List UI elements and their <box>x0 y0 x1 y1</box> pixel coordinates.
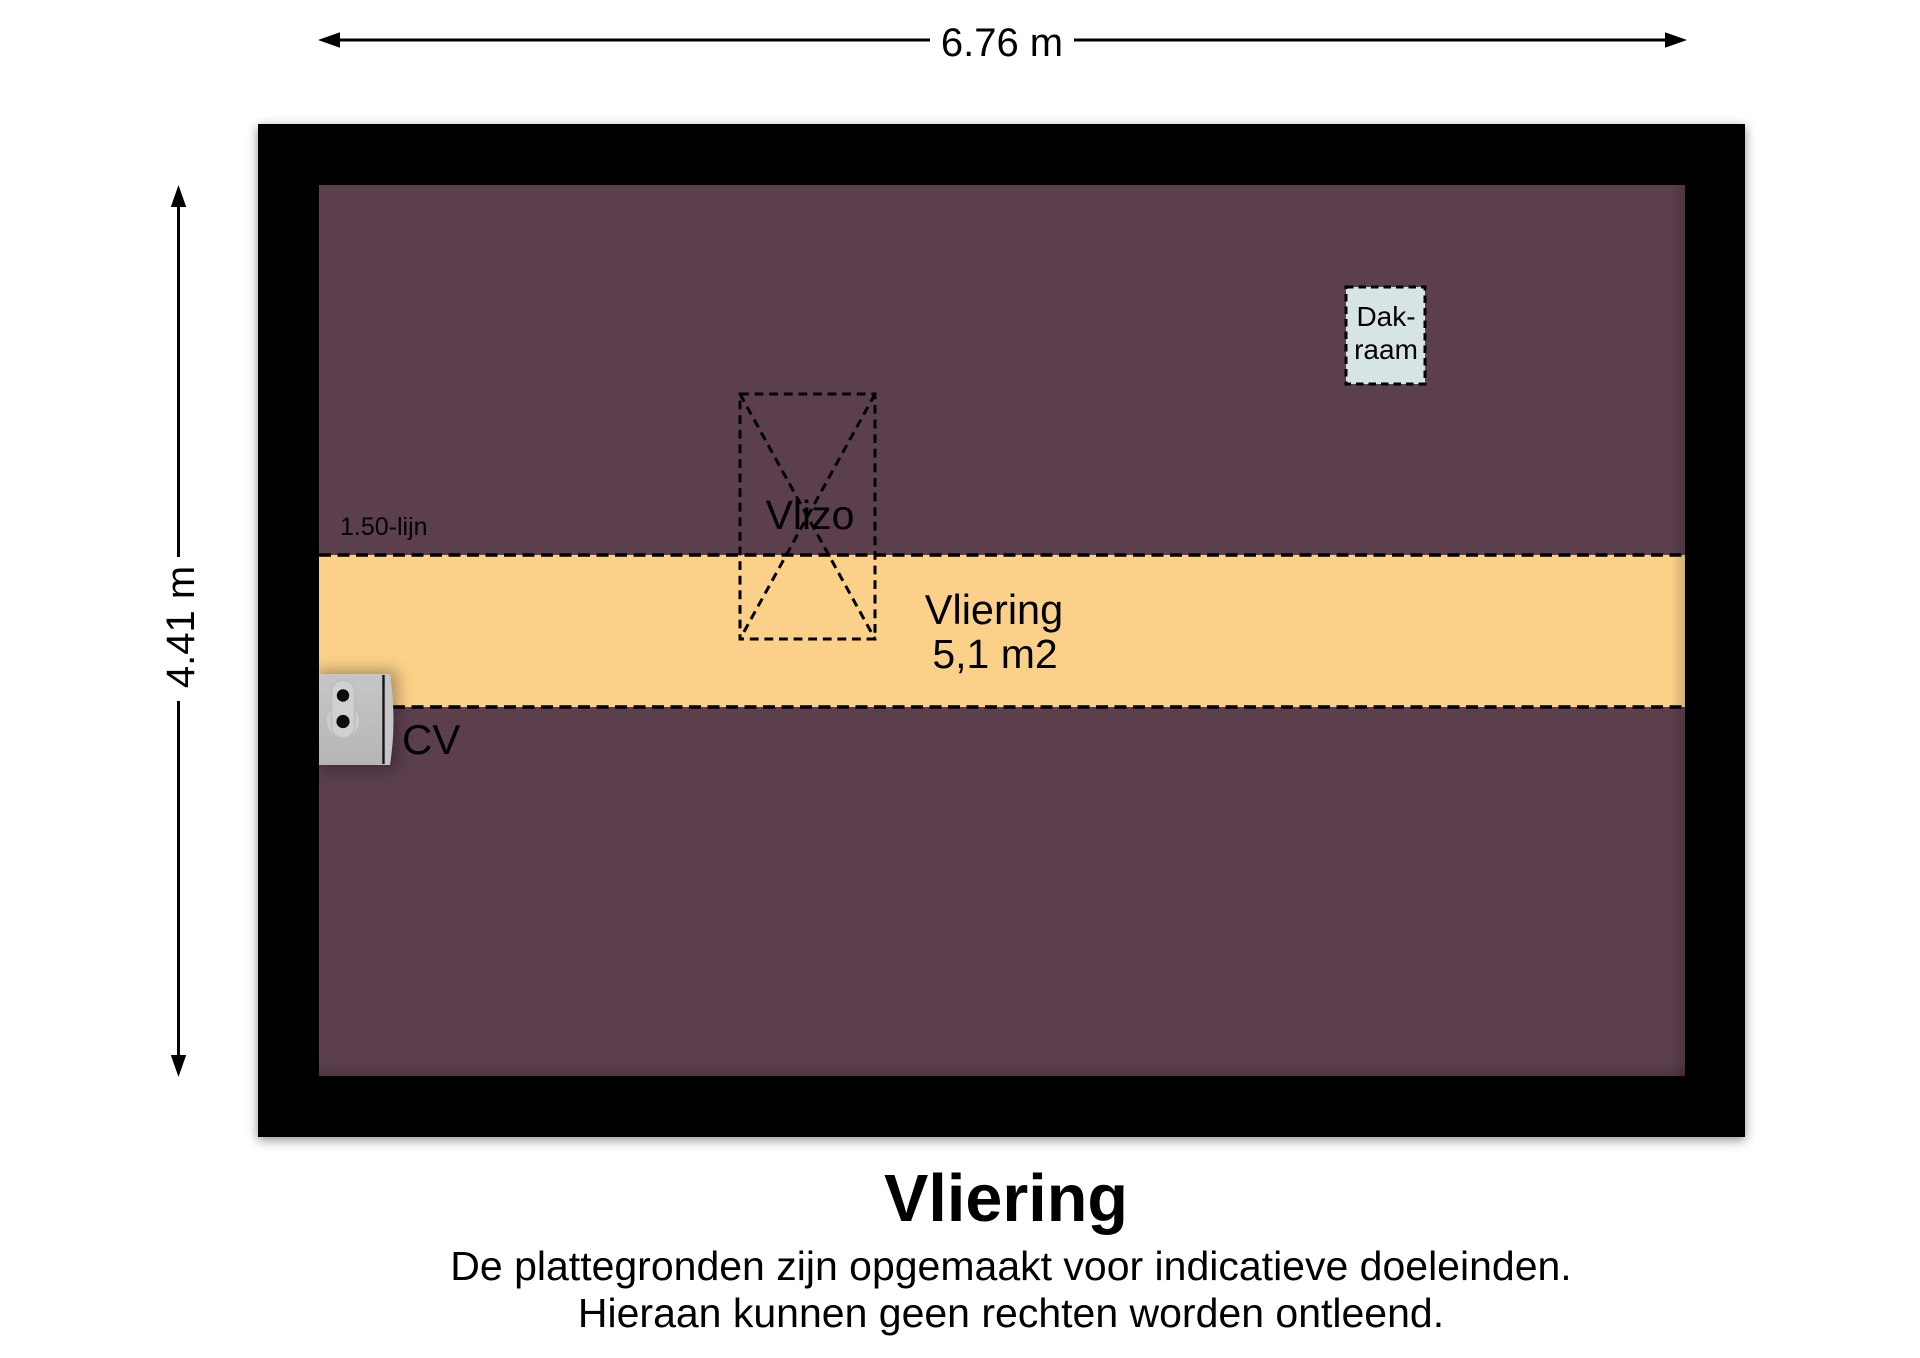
svg-text:Vlizo: Vlizo <box>766 492 855 538</box>
svg-text:Hieraan kunnen geen rechten wo: Hieraan kunnen geen rechten worden ontle… <box>578 1290 1444 1336</box>
svg-text:Dak-: Dak- <box>1356 301 1415 332</box>
svg-text:Vliering: Vliering <box>925 586 1063 633</box>
svg-text:5,1 m2: 5,1 m2 <box>932 631 1057 677</box>
svg-text:4.41 m: 4.41 m <box>159 566 203 688</box>
svg-text:De plattegronden zijn opgemaak: De plattegronden zijn opgemaakt voor ind… <box>450 1243 1571 1289</box>
svg-text:1.50-lijn: 1.50-lijn <box>340 513 428 541</box>
svg-text:CV: CV <box>402 716 460 763</box>
svg-text:raam: raam <box>1354 334 1418 365</box>
svg-text:6.76 m: 6.76 m <box>941 21 1063 65</box>
svg-text:Vliering: Vliering <box>884 1162 1128 1236</box>
